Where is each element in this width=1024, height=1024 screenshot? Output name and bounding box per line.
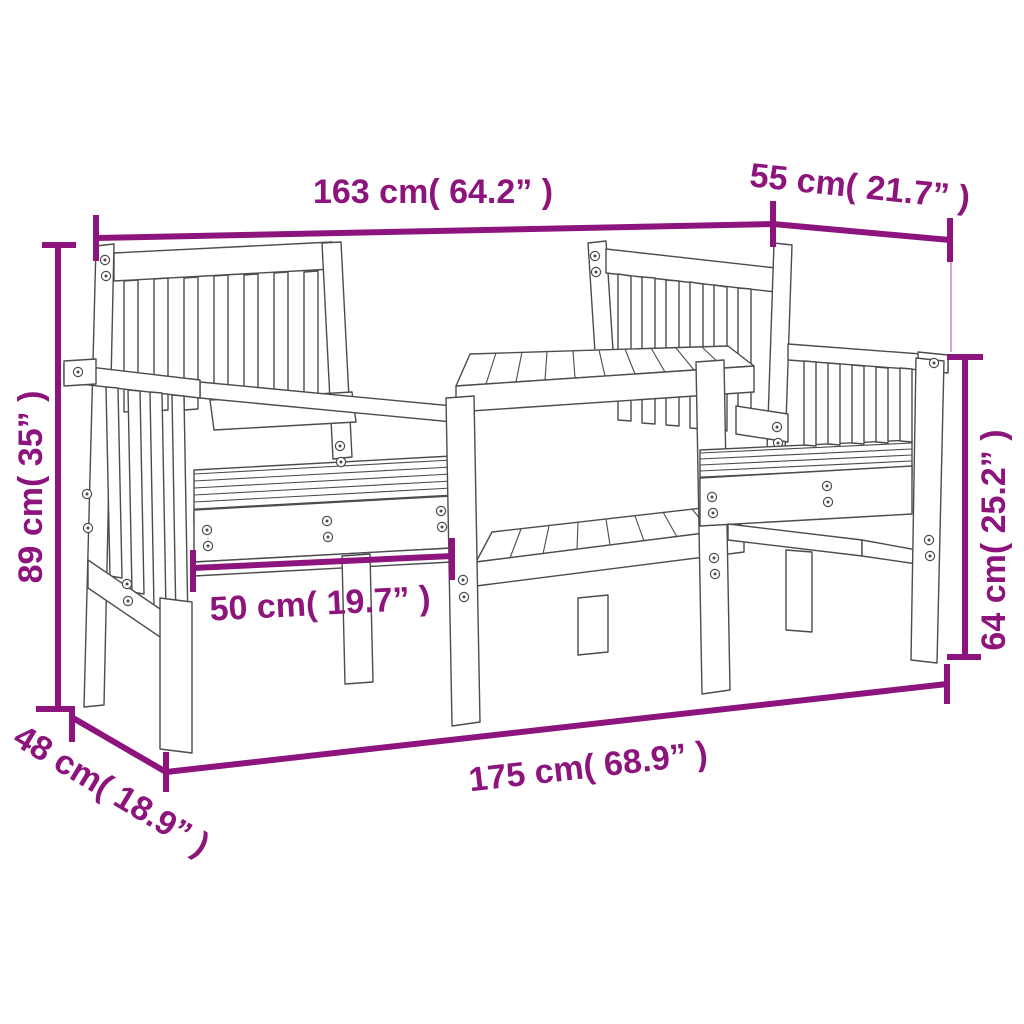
- left-chair: [64, 242, 474, 753]
- left-chair-front-left-leg: [160, 598, 192, 753]
- right-chair-side-stretcher: [862, 540, 917, 564]
- dimension-diagram: 163 cm( 64.2” ) 55 cm( 21.7” ) 89 cm( 35…: [0, 0, 1024, 1024]
- center-table: [446, 346, 754, 726]
- left-chair-rear-right-post: [322, 242, 352, 459]
- dim-label-seat-width: 50 cm( 19.7” ): [209, 579, 432, 629]
- table-rear-leg: [578, 595, 608, 655]
- dim-label-right-height: 64 cm( 25.2” ): [975, 429, 1013, 650]
- dim-label-left-height: 89 cm( 35” ): [12, 391, 50, 584]
- right-chair-rear-leg: [786, 550, 812, 632]
- dim-label-top-width: 163 cm( 64.2” ): [313, 173, 553, 211]
- dim-label-top-depth: 55 cm( 21.7” ): [748, 156, 972, 217]
- dim-line-55: [773, 218, 950, 262]
- right-chair-front-right-leg: [911, 358, 944, 663]
- dim-label-bottom-width: 175 cm( 68.9” ): [467, 734, 710, 799]
- table-front-right-post: [696, 360, 730, 694]
- bench-diagram-svg: 163 cm( 64.2” ) 55 cm( 21.7” ) 89 cm( 35…: [0, 0, 1024, 1024]
- right-chair-arm-slats: [804, 361, 912, 446]
